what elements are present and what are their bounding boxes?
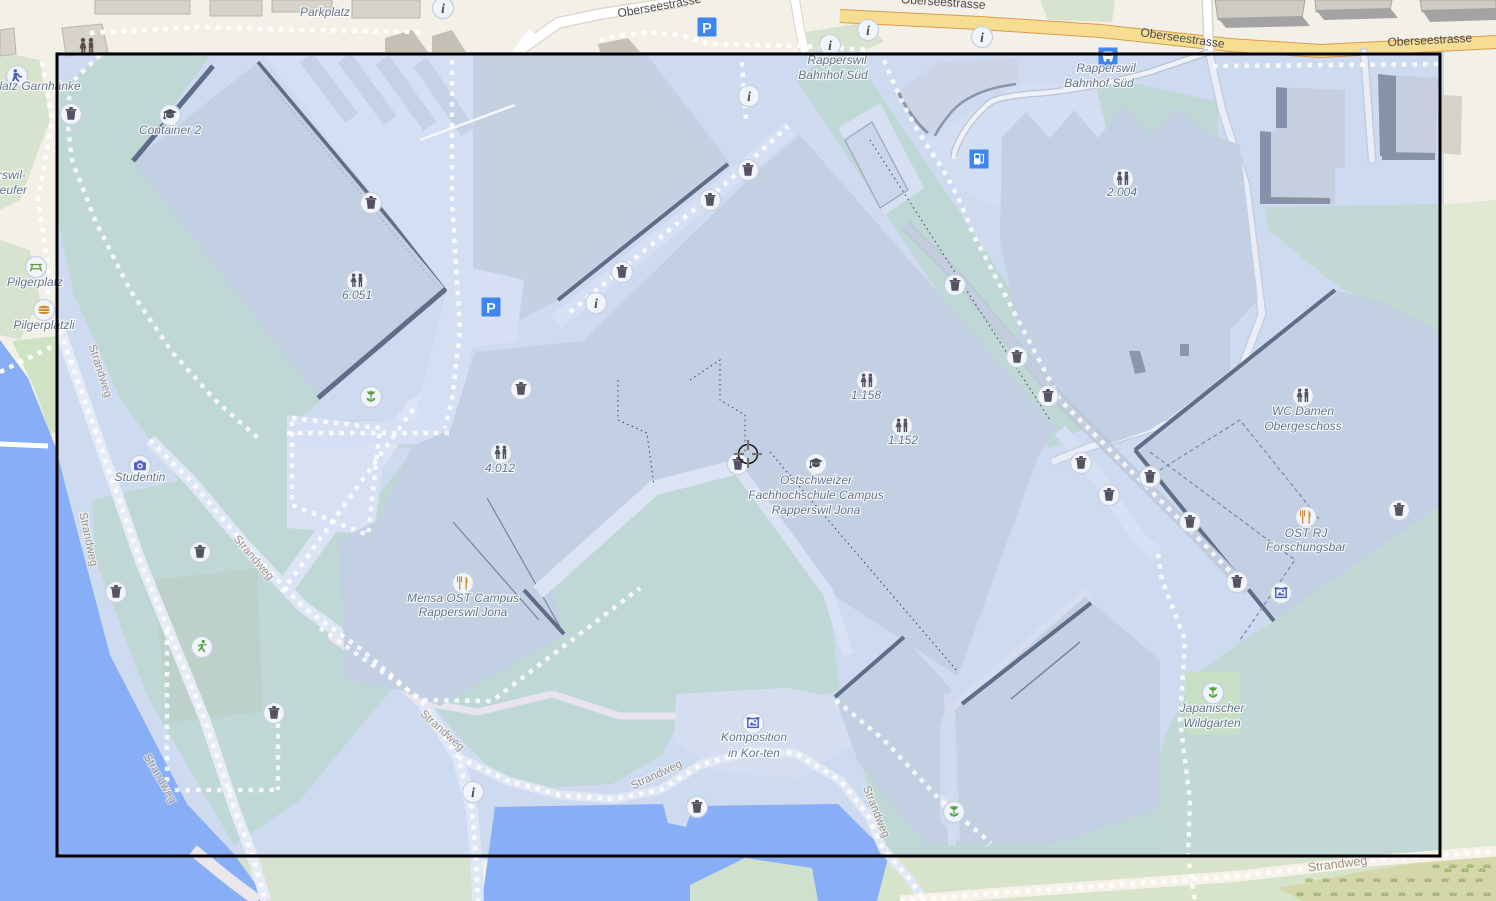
svg-text:Container 2: Container 2 (139, 123, 201, 137)
svg-text:Ostschweizer: Ostschweizer (780, 473, 853, 487)
svg-text:Komposition: Komposition (721, 730, 787, 744)
svg-text:Fachhochschule Campus: Fachhochschule Campus (748, 488, 883, 502)
svg-text:2.004: 2.004 (1106, 185, 1137, 199)
svg-text:Parkplatz: Parkplatz (300, 5, 350, 19)
svg-text:Rapperswil Jona: Rapperswil Jona (419, 605, 508, 619)
svg-text:Platz Garnhänke: Platz Garnhänke (0, 79, 81, 93)
svg-text:Forschungsbar: Forschungsbar (1266, 540, 1347, 554)
svg-text:Mensa OST Campus: Mensa OST Campus (407, 591, 519, 605)
svg-text:in Kor-ten: in Kor-ten (728, 746, 780, 760)
svg-text:1.152: 1.152 (888, 433, 918, 447)
svg-text:1.158: 1.158 (851, 388, 881, 402)
svg-text:6.051: 6.051 (342, 288, 372, 302)
svg-text:Bahnhof Süd: Bahnhof Süd (1064, 76, 1134, 90)
svg-text:eeufer: eeufer (0, 183, 28, 197)
svg-text:Pilgerplatz: Pilgerplatz (7, 275, 63, 289)
svg-text:WC Damen: WC Damen (1272, 404, 1334, 418)
svg-text:Wildgarten: Wildgarten (1183, 716, 1241, 730)
svg-text:rswil-: rswil- (0, 168, 26, 182)
svg-text:OST RJ: OST RJ (1285, 526, 1329, 540)
svg-text:Bahnhof Süd: Bahnhof Süd (798, 68, 868, 82)
svg-text:Studentin: Studentin (115, 470, 166, 484)
svg-text:4.012: 4.012 (485, 461, 515, 475)
svg-text:Rapperswil Jona: Rapperswil Jona (772, 503, 861, 517)
svg-text:Obergeschoss: Obergeschoss (1264, 419, 1341, 433)
svg-text:Pilgerplätzli: Pilgerplätzli (13, 318, 75, 332)
svg-text:Japanischer: Japanischer (1179, 701, 1246, 715)
svg-text:Rapperswil: Rapperswil (1076, 61, 1136, 75)
